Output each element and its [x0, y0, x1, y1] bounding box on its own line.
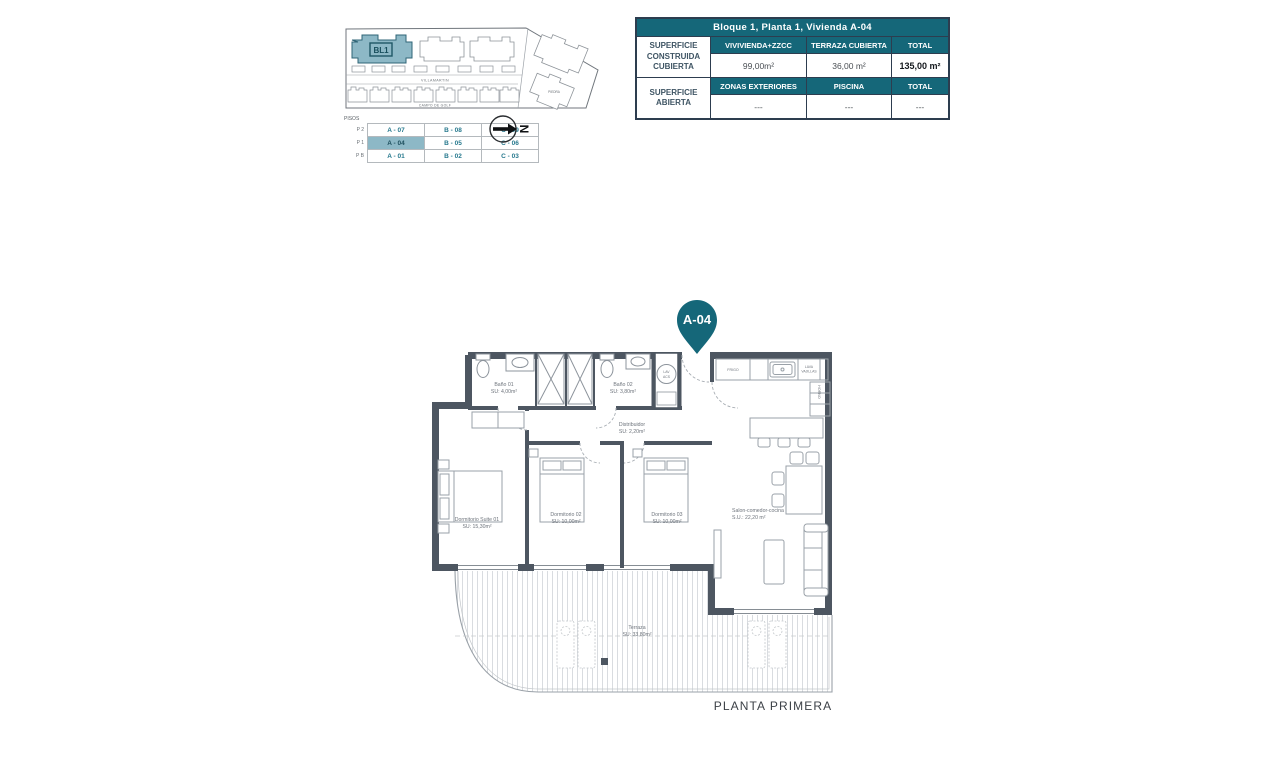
fridge-label: FRIGO [727, 368, 739, 372]
column-header: ZONAS EXTERIORES [710, 77, 806, 94]
bl1-label: BL1 [373, 46, 389, 55]
value-cell-total: 135,00 m² [891, 53, 948, 77]
room-label: Distribuidor [619, 422, 646, 428]
road-top-label: VILLAMARTIN [421, 79, 449, 83]
value-cell: --- [891, 94, 948, 118]
terrace-column [601, 658, 608, 665]
summary-table-title: Bloque 1, Planta 1, Vivienda A-04 [637, 19, 948, 37]
piedra-label: PIEDRA [548, 90, 561, 94]
dishwasher-label-2: VAJILLAS [801, 370, 817, 374]
compass-letter: N [517, 125, 531, 134]
room-area: S.U.: 22,20 m² [732, 515, 766, 521]
floor-label: P 2 [344, 124, 368, 137]
summary-row-label: SUPERFICIE CONSTRUIDA CUBIERTA [637, 37, 710, 77]
building-bl1: BL1 [352, 35, 412, 63]
building-3 [470, 37, 514, 61]
unit-cell: C - 03 [482, 150, 539, 163]
unit-cell: B - 02 [425, 150, 482, 163]
room-label: Baño 01 [494, 382, 513, 388]
unit-cell: A - 01 [368, 150, 425, 163]
plan-caption: PLANTA PRIMERA [703, 699, 843, 713]
room-area: SU: 2,20m² [619, 429, 646, 435]
summary-row-label: SUPERFICIE ABIERTA [637, 77, 710, 118]
room-label: Terraza [628, 625, 645, 631]
building-2 [420, 37, 464, 61]
unit-cell: B - 05 [425, 137, 482, 150]
oven-label: HORNO [817, 385, 821, 399]
room-label: Salon-comedor-cocina [732, 508, 784, 514]
dining-set [772, 452, 822, 514]
room-area: SU: 10,00m² [652, 519, 681, 525]
column-header: PISCINA [806, 77, 891, 94]
laundry-label: LAV [663, 370, 670, 374]
column-header: VIVIVIENDA+ZZCC [710, 37, 806, 53]
houses-row [348, 87, 519, 102]
dishwasher-label: LAVA [805, 365, 814, 369]
value-cell: --- [710, 94, 806, 118]
column-header: TERRAZA CUBIERTA [806, 37, 891, 53]
unit-cell: A - 07 [368, 124, 425, 137]
floor-label: P 1 [344, 137, 368, 150]
room-area: SU: 10,00m² [551, 519, 580, 525]
value-cell: --- [806, 94, 891, 118]
value-cell: 99,00m² [710, 53, 806, 77]
laundry-label-2: ACS [663, 375, 671, 379]
value-cell: 36,00 m² [806, 53, 891, 77]
room-label: Dormitorio 03 [651, 512, 682, 518]
living-furniture [714, 524, 828, 596]
summary-table: Bloque 1, Planta 1, Vivienda A-04 SUPERF… [635, 17, 950, 120]
north-compass: N [487, 112, 535, 148]
pin-label: A-04 [683, 312, 712, 327]
unit-cell: B - 08 [425, 124, 482, 137]
unit-cell-highlighted: A - 04 [368, 137, 425, 150]
room-label: Dormitorio 02 [550, 512, 581, 518]
parking-row-1 [352, 66, 515, 72]
suite-furniture [438, 412, 524, 533]
room-area: SU: 33,80m² [622, 632, 651, 638]
room-area: SU: 4,00m² [491, 389, 518, 395]
buildings-east: PIEDRA [527, 31, 588, 112]
laundry-closet: LAV ACS [655, 353, 678, 408]
room-area: SU: 15,30m² [462, 524, 491, 530]
floor-plan: LAV ACS FRIGO LAVA VAJILLAS HORNO [420, 340, 850, 720]
room-area: SU: 3,80m² [610, 389, 637, 395]
column-header: TOTAL [891, 37, 948, 53]
column-header: TOTAL [891, 77, 948, 94]
table-row: P B A - 01 B - 02 C - 03 [344, 150, 539, 163]
room-label: Baño 02 [613, 382, 632, 388]
room-label: Dormitorio Suite 01 [455, 517, 500, 523]
floor-label: P B [344, 150, 368, 163]
road-bottom-label: CAMPO DE GOLF [419, 104, 451, 108]
